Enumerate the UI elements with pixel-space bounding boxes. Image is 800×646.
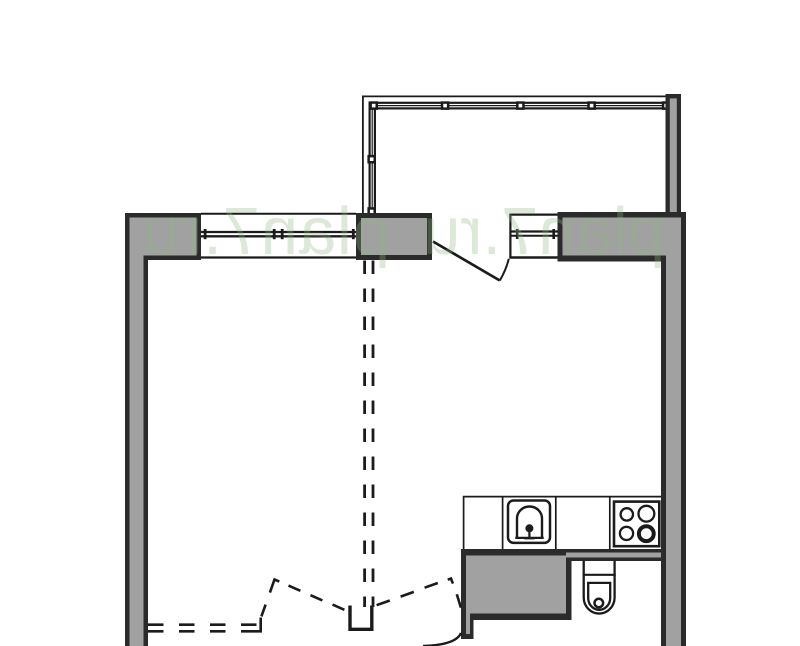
svg-text:plan7.ru: plan7.ru <box>423 194 665 269</box>
svg-text:plan7.ru: plan7.ru <box>142 194 390 269</box>
